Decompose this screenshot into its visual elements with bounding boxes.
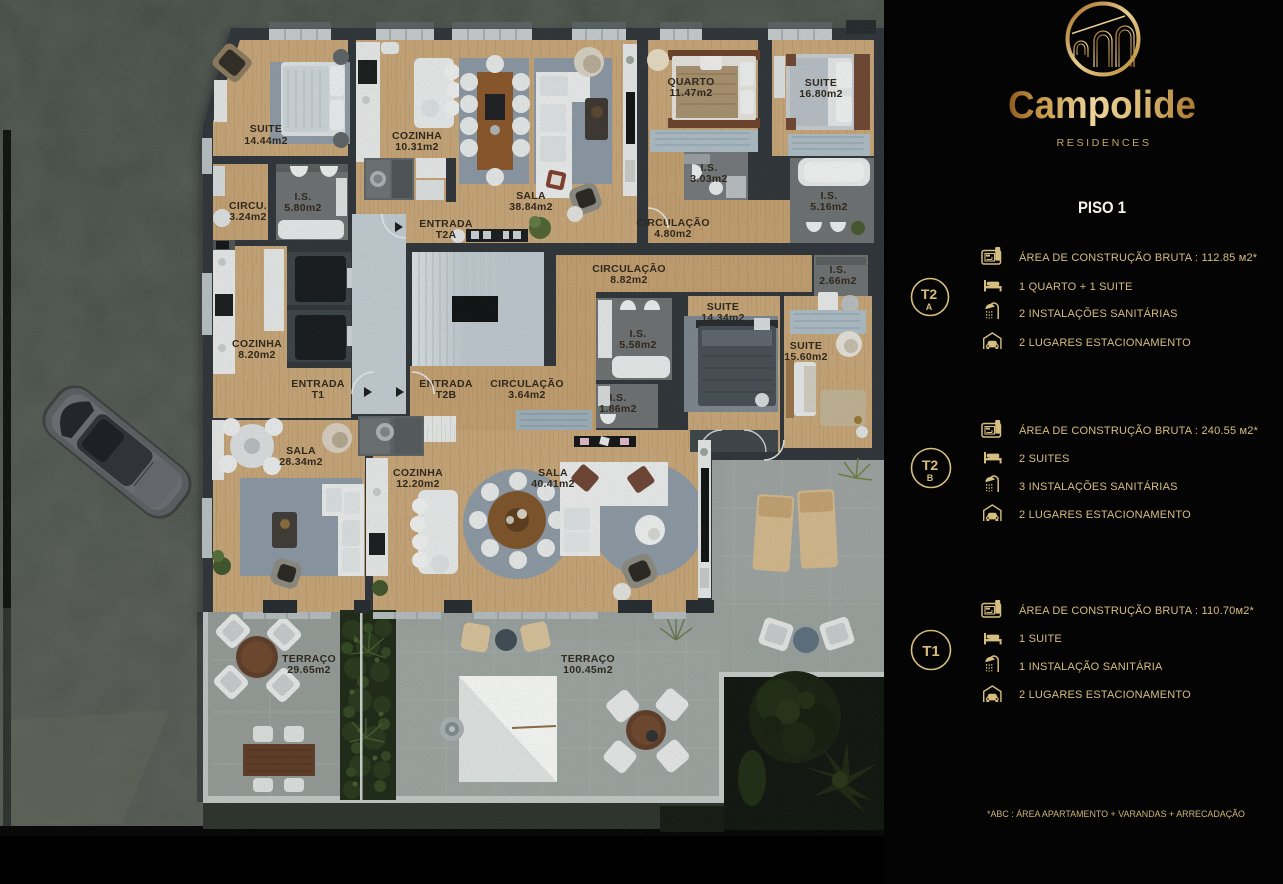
svg-text:T2: T2 — [922, 457, 939, 473]
svg-text:2 INSTALAÇÕES SANITÁRIAS: 2 INSTALAÇÕES SANITÁRIAS — [1019, 307, 1178, 320]
svg-text:PISO 1: PISO 1 — [1078, 198, 1126, 217]
svg-text:ÁREA DE CONSTRUÇÃO BRUTA : 24: ÁREA DE CONSTRUÇÃO BRUTA : 240.55 м2* — [1019, 424, 1259, 437]
svg-text:RESIDENCES: RESIDENCES — [1057, 137, 1152, 149]
svg-text:2 LUGARES ESTACIONAMENTO: 2 LUGARES ESTACIONAMENTO — [1019, 509, 1191, 521]
svg-text:*ABC : ÁREA APARTAMENTO + VAR: *ABC : ÁREA APARTAMENTO + VARANDAS + ARR… — [987, 809, 1245, 819]
svg-text:T1: T1 — [922, 643, 940, 660]
svg-text:1 QUARTO + 1 SUITE: 1 QUARTO + 1 SUITE — [1019, 281, 1133, 293]
svg-text:3 INSTALAÇÕES SANITÁRIAS: 3 INSTALAÇÕES SANITÁRIAS — [1019, 480, 1178, 493]
svg-text:2 LUGARES ESTACIONAMENTO: 2 LUGARES ESTACIONAMENTO — [1019, 689, 1191, 701]
svg-text:Campolide: Campolide — [1008, 84, 1196, 127]
svg-text:2 LUGARES ESTACIONAMENTO: 2 LUGARES ESTACIONAMENTO — [1019, 337, 1191, 349]
svg-text:ÁREA DE CONSTRUÇÃO BRUTA : 11: ÁREA DE CONSTRUÇÃO BRUTA : 110.70м2* — [1019, 604, 1255, 617]
svg-text:ÁREA DE CONSTRUÇÃO BRUTA : 11: ÁREA DE CONSTRUÇÃO BRUTA : 112.85 м2* — [1019, 251, 1258, 264]
svg-text:1 SUITE: 1 SUITE — [1019, 633, 1062, 645]
svg-text:2 SUITES: 2 SUITES — [1019, 453, 1070, 465]
svg-text:1 INSTALAÇÃO SANITÁRIA: 1 INSTALAÇÃO SANITÁRIA — [1019, 660, 1163, 673]
svg-text:T2: T2 — [921, 286, 938, 302]
svg-text:A: A — [926, 302, 933, 312]
svg-text:B: B — [927, 473, 934, 483]
